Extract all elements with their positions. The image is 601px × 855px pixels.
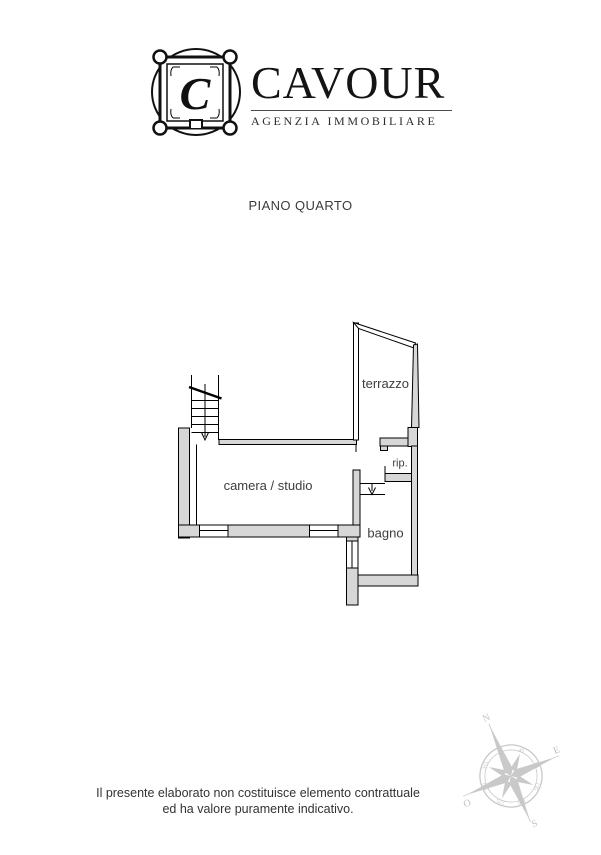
rip-bottom-wall [385, 474, 412, 482]
terrazzo-rip-wall [380, 438, 408, 446]
compass-east-label: E [552, 744, 562, 757]
door-jamb [381, 446, 388, 451]
terrazzo-top-wall [354, 323, 416, 349]
room-label-bagno: bagno [367, 526, 403, 541]
left-wall [179, 428, 190, 538]
compass-south-label: S [530, 818, 539, 830]
room-label-camera-studio: camera / studio [224, 478, 313, 493]
disclaimer: Il presente elaborato non costituisce el… [0, 785, 516, 817]
disclaimer-line-2: ed ha valore puramente indicativo. [0, 801, 516, 817]
disclaimer-line-1: Il presente elaborato non costituisce el… [0, 785, 516, 801]
bagno-bottom-wall [358, 575, 418, 586]
terrazzo-right-wall [412, 344, 420, 428]
floor-plan-page: C CAVOUR AGENZIA IMMOBILIARE PIANO QUART… [0, 0, 601, 855]
terrazzo-left-wall [354, 323, 359, 440]
bagno-right-wall [412, 446, 418, 586]
top-wall [219, 440, 357, 445]
room-label-rip: rip. [392, 458, 407, 470]
corridor-wall [353, 470, 360, 525]
room-label-terrazzo: terrazzo [362, 376, 409, 391]
staircase [189, 375, 222, 440]
compass-north-label: N [481, 712, 492, 725]
